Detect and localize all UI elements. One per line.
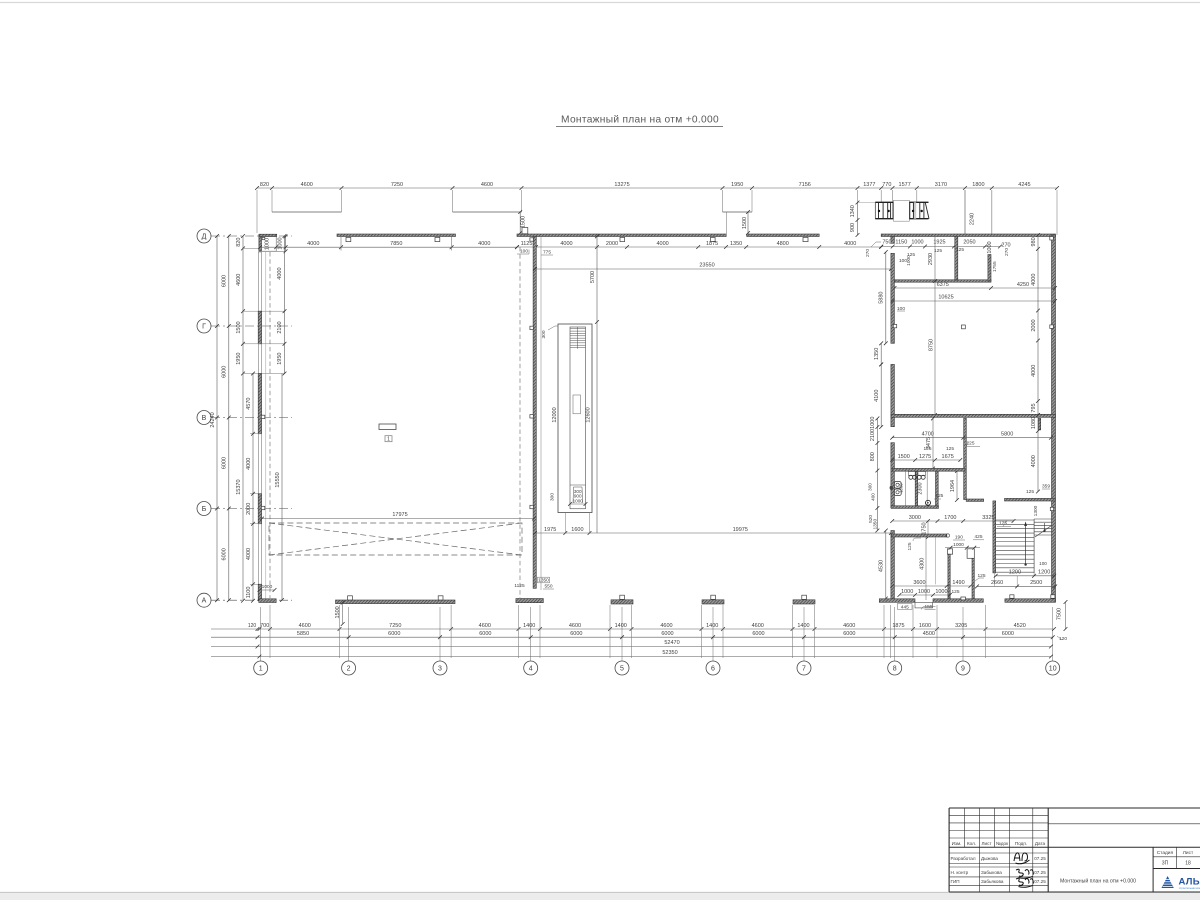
svg-text:1000: 1000 <box>262 584 273 590</box>
svg-text:5880: 5880 <box>879 292 885 304</box>
svg-text:1875: 1875 <box>892 623 904 629</box>
svg-text:795: 795 <box>1031 403 1037 412</box>
svg-text:125: 125 <box>907 542 913 550</box>
svg-text:7500: 7500 <box>1056 608 1062 620</box>
svg-text:1600: 1600 <box>919 623 931 629</box>
svg-text:1350: 1350 <box>874 348 880 360</box>
svg-text:4000: 4000 <box>307 241 319 247</box>
svg-text:1300: 1300 <box>1033 505 1039 516</box>
svg-text:10: 10 <box>1049 666 1057 673</box>
svg-text:6000: 6000 <box>479 631 491 637</box>
svg-text:4600: 4600 <box>569 623 581 629</box>
svg-text:9: 9 <box>961 666 965 673</box>
svg-text:Лист: Лист <box>1183 850 1194 856</box>
svg-text:1577: 1577 <box>899 182 911 188</box>
svg-text:4570: 4570 <box>246 398 252 410</box>
svg-text:6000: 6000 <box>222 366 228 378</box>
svg-text:6000: 6000 <box>1002 631 1014 637</box>
svg-text:1675: 1675 <box>942 454 954 460</box>
svg-text:6375: 6375 <box>937 282 949 288</box>
svg-text:4000: 4000 <box>1031 274 1037 286</box>
svg-text:4100: 4100 <box>874 390 880 402</box>
svg-text:Н. контр: Н. контр <box>951 870 969 875</box>
svg-text:1100: 1100 <box>246 587 252 599</box>
svg-text:Стадия: Стадия <box>1157 850 1174 856</box>
svg-text:6000: 6000 <box>752 631 764 637</box>
svg-text:4000: 4000 <box>1031 365 1037 377</box>
svg-text:1000: 1000 <box>953 542 964 548</box>
svg-text:1000: 1000 <box>935 589 947 595</box>
svg-text:07.25: 07.25 <box>1034 870 1046 875</box>
svg-text:4600: 4600 <box>843 623 855 629</box>
svg-text:6000: 6000 <box>388 631 400 637</box>
svg-text:6000: 6000 <box>661 631 673 637</box>
svg-text:4530: 4530 <box>878 560 884 572</box>
svg-text:№док: №док <box>996 841 1009 846</box>
svg-text:4000: 4000 <box>277 267 283 279</box>
svg-text:3205: 3205 <box>955 623 967 629</box>
svg-text:4000: 4000 <box>1031 455 1037 467</box>
svg-text:АЛЬЯ: АЛЬЯ <box>1179 877 1200 888</box>
svg-text:125: 125 <box>946 446 954 452</box>
svg-text:10625: 10625 <box>938 295 953 301</box>
svg-text:1000: 1000 <box>870 417 876 429</box>
svg-text:6000: 6000 <box>222 275 228 287</box>
svg-text:Забыкова: Забыкова <box>981 870 1002 875</box>
svg-text:1400: 1400 <box>706 623 718 629</box>
svg-text:300: 300 <box>541 330 547 338</box>
svg-text:125: 125 <box>923 446 931 452</box>
svg-text:1490: 1490 <box>952 580 964 586</box>
svg-text:820: 820 <box>260 182 269 188</box>
svg-text:1000: 1000 <box>278 237 284 249</box>
svg-text:4000: 4000 <box>246 458 252 470</box>
svg-text:120: 120 <box>1059 636 1067 642</box>
svg-text:1350: 1350 <box>873 519 879 530</box>
svg-text:7156: 7156 <box>799 182 811 188</box>
svg-text:300: 300 <box>550 493 556 501</box>
svg-text:1275: 1275 <box>919 454 931 460</box>
svg-text:7250: 7250 <box>389 623 401 629</box>
svg-text:4600: 4600 <box>299 623 311 629</box>
svg-text:4600: 4600 <box>479 623 491 629</box>
svg-text:5850: 5850 <box>297 631 309 637</box>
svg-text:5800: 5800 <box>1001 431 1013 437</box>
svg-text:190: 190 <box>955 535 963 541</box>
svg-text:4245: 4245 <box>1018 182 1030 188</box>
svg-text:Монтажный план на отм +0.000: Монтажный план на отм +0.000 <box>561 115 719 126</box>
svg-text:4500: 4500 <box>923 631 935 637</box>
svg-text:1964: 1964 <box>950 480 956 492</box>
svg-text:1600: 1600 <box>571 527 583 533</box>
svg-text:125: 125 <box>951 589 959 595</box>
svg-text:4520: 4520 <box>1014 623 1026 629</box>
svg-text:2660: 2660 <box>991 580 1003 586</box>
svg-text:8750: 8750 <box>928 339 934 351</box>
svg-text:425: 425 <box>974 534 982 540</box>
svg-text:8: 8 <box>893 666 897 673</box>
svg-text:13275: 13275 <box>614 182 629 188</box>
svg-text:125: 125 <box>956 247 964 253</box>
svg-text:6000: 6000 <box>222 548 228 560</box>
svg-text:4: 4 <box>529 666 533 673</box>
svg-text:700: 700 <box>260 623 269 629</box>
svg-text:23550: 23550 <box>699 263 714 269</box>
svg-text:1400: 1400 <box>797 623 809 629</box>
svg-text:4600: 4600 <box>481 182 493 188</box>
svg-text:ЗП: ЗП <box>1162 861 1169 867</box>
svg-text:4000: 4000 <box>246 548 252 560</box>
svg-text:775: 775 <box>543 250 551 256</box>
svg-text:1150: 1150 <box>895 239 907 245</box>
svg-text:980: 980 <box>1031 237 1037 246</box>
svg-text:1800: 1800 <box>972 182 984 188</box>
svg-text:1000: 1000 <box>987 241 993 253</box>
svg-text:5700: 5700 <box>590 271 596 283</box>
svg-text:ГИП: ГИП <box>951 879 960 884</box>
svg-text:4000: 4000 <box>844 241 856 247</box>
svg-text:1080: 1080 <box>1031 417 1037 429</box>
svg-text:5: 5 <box>620 666 624 673</box>
svg-text:12600: 12600 <box>586 407 592 422</box>
svg-text:7850: 7850 <box>390 241 402 247</box>
svg-text:1500: 1500 <box>335 606 341 618</box>
svg-text:3170: 3170 <box>935 182 947 188</box>
svg-text:1950: 1950 <box>277 353 283 365</box>
svg-text:2000: 2000 <box>246 503 252 515</box>
svg-text:2: 2 <box>347 666 351 673</box>
svg-text:4250: 4250 <box>1017 282 1029 288</box>
svg-text:750: 750 <box>882 239 891 245</box>
svg-text:Г: Г <box>202 324 206 331</box>
svg-text:3600: 3600 <box>913 580 925 586</box>
svg-text:1200: 1200 <box>1038 570 1050 576</box>
svg-text:125: 125 <box>936 493 944 498</box>
svg-text:820: 820 <box>236 238 242 247</box>
svg-text:4600: 4600 <box>301 182 313 188</box>
svg-text:4600: 4600 <box>660 623 672 629</box>
svg-text:Лист: Лист <box>982 841 993 846</box>
svg-text:1340: 1340 <box>850 205 856 217</box>
svg-text:125: 125 <box>934 248 942 254</box>
svg-text:1875: 1875 <box>706 241 718 247</box>
svg-text:1377: 1377 <box>863 182 875 188</box>
svg-text:400: 400 <box>871 493 876 501</box>
svg-text:18: 18 <box>1185 861 1191 867</box>
svg-text:1125: 1125 <box>521 241 533 247</box>
svg-text:1500: 1500 <box>236 321 242 333</box>
svg-text:1500: 1500 <box>898 454 910 460</box>
svg-text:800: 800 <box>870 452 876 461</box>
svg-text:1000: 1000 <box>898 483 903 493</box>
svg-text:4800: 4800 <box>777 241 789 247</box>
svg-text:1000: 1000 <box>901 589 913 595</box>
svg-text:Забьякова: Забьякова <box>981 879 1004 884</box>
svg-text:1400: 1400 <box>523 623 535 629</box>
svg-text:120: 120 <box>248 623 257 629</box>
svg-text:Кол.: Кол. <box>967 841 976 846</box>
svg-text:07.25: 07.25 <box>1034 856 1046 861</box>
svg-text:2100: 2100 <box>870 429 876 441</box>
svg-text:2050: 2050 <box>963 239 975 245</box>
svg-text:4000: 4000 <box>656 241 668 247</box>
svg-text:1000: 1000 <box>573 498 584 503</box>
svg-text:17975: 17975 <box>392 512 407 518</box>
svg-text:15550: 15550 <box>275 472 281 487</box>
svg-text:2100: 2100 <box>277 321 283 333</box>
svg-text:100: 100 <box>520 249 528 255</box>
svg-text:1750: 1750 <box>921 522 927 534</box>
svg-text:Дата: Дата <box>1035 841 1046 846</box>
svg-text:Д: Д <box>202 234 207 241</box>
svg-text:1200: 1200 <box>1009 570 1021 576</box>
svg-text:1: 1 <box>259 666 263 673</box>
svg-text:1950: 1950 <box>731 182 743 188</box>
svg-text:Подп.: Подп. <box>1015 841 1027 846</box>
svg-text:100: 100 <box>1039 561 1047 566</box>
svg-text:В: В <box>202 415 207 422</box>
svg-text:1755: 1755 <box>992 261 998 272</box>
svg-text:24240: 24240 <box>210 412 216 427</box>
svg-text:1700: 1700 <box>944 515 956 521</box>
svg-text:550: 550 <box>544 584 552 590</box>
svg-text:12000: 12000 <box>552 407 558 422</box>
svg-text:1975: 1975 <box>544 527 556 533</box>
svg-text:270: 270 <box>1001 243 1010 249</box>
svg-text:6000: 6000 <box>222 457 228 469</box>
svg-text:1500: 1500 <box>521 216 527 228</box>
svg-text:4700: 4700 <box>922 431 934 437</box>
svg-text:1500: 1500 <box>742 217 748 229</box>
svg-text:2930: 2930 <box>928 253 934 265</box>
svg-text:6: 6 <box>711 666 715 673</box>
svg-text:2000: 2000 <box>1031 319 1037 331</box>
svg-text:900: 900 <box>850 223 856 232</box>
svg-text:07.25: 07.25 <box>1034 879 1046 884</box>
svg-text:270: 270 <box>865 249 871 257</box>
svg-text:Дыжова: Дыжова <box>981 856 998 861</box>
svg-text:6000: 6000 <box>843 631 855 637</box>
svg-text:125: 125 <box>999 521 1007 527</box>
svg-text:1125: 1125 <box>514 583 525 589</box>
svg-text:270: 270 <box>1004 248 1010 256</box>
svg-text:7: 7 <box>802 666 806 673</box>
svg-text:155: 155 <box>924 604 932 610</box>
svg-text:Изм.: Изм. <box>952 841 962 846</box>
svg-text:1: 1 <box>387 436 390 442</box>
svg-text:300: 300 <box>868 483 873 491</box>
svg-text:1350: 1350 <box>730 241 742 247</box>
svg-text:2000: 2000 <box>606 241 618 247</box>
svg-text:4000: 4000 <box>478 241 490 247</box>
svg-text:52470: 52470 <box>664 640 679 646</box>
svg-text:6000: 6000 <box>570 631 582 637</box>
svg-text:Монтажный план на отм +0.000: Монтажный план на отм +0.000 <box>1060 878 1136 885</box>
svg-text:1000: 1000 <box>265 238 271 250</box>
svg-text:Разработал: Разработал <box>951 856 976 861</box>
svg-text:125: 125 <box>1026 489 1034 495</box>
svg-text:52350: 52350 <box>662 650 677 656</box>
svg-text:4300: 4300 <box>919 558 925 570</box>
svg-text:2500: 2500 <box>1030 580 1042 586</box>
svg-text:125: 125 <box>907 252 915 258</box>
svg-text:4600: 4600 <box>236 274 242 286</box>
svg-text:строительная комп: строительная комп <box>1179 887 1200 890</box>
svg-text:А: А <box>202 598 207 605</box>
svg-text:4000: 4000 <box>560 241 572 247</box>
svg-text:2240: 2240 <box>970 213 976 225</box>
svg-text:3000: 3000 <box>909 515 921 521</box>
svg-text:7250: 7250 <box>391 182 403 188</box>
svg-text:15370: 15370 <box>236 479 242 494</box>
svg-text:Б: Б <box>202 506 207 513</box>
svg-text:359: 359 <box>1042 484 1050 490</box>
svg-text:1000: 1000 <box>918 589 930 595</box>
svg-text:770: 770 <box>882 182 891 188</box>
svg-text:4600: 4600 <box>752 623 764 629</box>
svg-text:1950: 1950 <box>236 353 242 365</box>
svg-text:1400: 1400 <box>615 623 627 629</box>
svg-text:19975: 19975 <box>733 527 748 533</box>
svg-text:2300: 2300 <box>918 482 924 494</box>
svg-text:1000: 1000 <box>911 239 923 245</box>
svg-text:3: 3 <box>438 666 442 673</box>
